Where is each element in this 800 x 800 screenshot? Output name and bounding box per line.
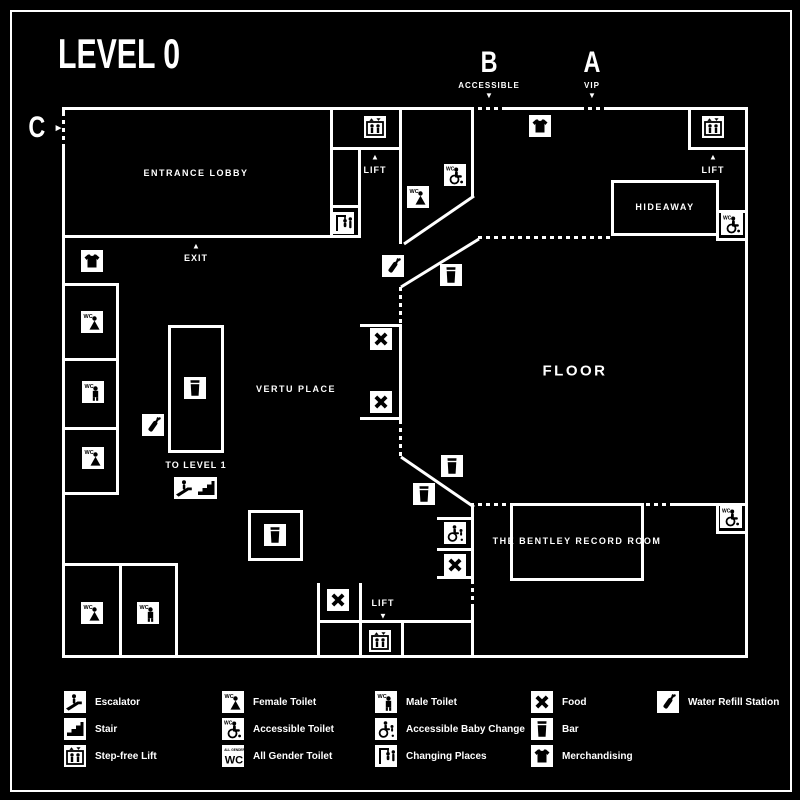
legend-item-label: Female Toilet [253, 697, 316, 708]
legend-item-label: Food [562, 697, 586, 708]
stepfree-lift-icon [64, 745, 86, 767]
food-icon [370, 328, 392, 350]
allgender-toilet-icon: ALL GENDERWC [222, 745, 244, 767]
legend-item-label: All Gender Toilet [253, 751, 332, 762]
svg-text:WC: WC [140, 605, 149, 611]
female-toilet-icon: WC [81, 311, 103, 333]
entrance-a-arrow-icon: ▼ [588, 91, 596, 100]
exit-arrow-icon: ▲ [192, 242, 200, 251]
svg-text:WC: WC [225, 694, 234, 700]
floor-plan-page: LEVEL 0 B ACCESSIBLE ▼ A VIP ▼ C ► ENTRA… [0, 0, 800, 800]
legend-item-label: Water Refill Station [688, 697, 779, 708]
legend-item-accessible-toilet: WCAccessible Toilet [222, 718, 334, 740]
male-toilet-icon: WC [82, 381, 104, 403]
male-toilet-icon: WC [137, 602, 159, 624]
legend-item-male-toilet: WCMale Toilet [375, 691, 457, 713]
floor-label: FLOOR [543, 363, 608, 380]
lift-east-arrow-icon: ▲ [709, 153, 717, 162]
entrance-b: B ACCESSIBLE ▼ [458, 48, 520, 100]
female-toilet-icon: WC [407, 186, 429, 208]
legend-item-merchandising: Merchandising [531, 745, 633, 767]
legend-item-female-toilet: WCFemale Toilet [222, 691, 316, 713]
female-toilet-icon: WC [222, 691, 244, 713]
legend-item-label: Merchandising [562, 751, 633, 762]
accessible-toilet-icon: WC [222, 718, 244, 740]
changing-places-icon [332, 212, 354, 234]
water-refill-icon [382, 255, 404, 277]
legend-item-stair: Stair [64, 718, 117, 740]
accessible-toilet-icon: WC [444, 164, 466, 186]
stair-icon [195, 477, 217, 499]
bar-icon [184, 377, 206, 399]
water-refill-icon [142, 414, 164, 436]
food-icon [444, 554, 466, 576]
lift-south-arrow-icon: ▼ [379, 612, 387, 621]
legend-item-label: Accessible Toilet [253, 724, 334, 735]
entrance-c: C ► [26, 113, 64, 143]
merchandising-icon [529, 115, 551, 137]
svg-text:WC: WC [723, 216, 732, 222]
legend-item-label: Stair [95, 724, 117, 735]
legend-item-allgender-toilet: ALL GENDERWCAll Gender Toilet [222, 745, 332, 767]
merchandising-icon [81, 250, 103, 272]
exit-label: EXIT [184, 253, 208, 263]
food-icon [531, 691, 553, 713]
svg-text:WC: WC [722, 509, 731, 515]
entrance-a-letter: A [584, 48, 601, 78]
accessible-toilet-icon: WC [720, 506, 742, 528]
stepfree-lift-icon [702, 116, 724, 138]
escalator-icon [174, 477, 196, 499]
entrance-lobby-label: ENTRANCE LOBBY [143, 168, 248, 178]
svg-text:WC: WC [410, 189, 419, 195]
entrance-a: A VIP ▼ [581, 48, 603, 100]
entrance-c-arrow-icon: ► [54, 123, 64, 134]
svg-text:WC: WC [84, 605, 93, 611]
svg-text:WC: WC [85, 384, 94, 390]
bar-icon [441, 455, 463, 477]
legend-item-stepfree-lift: Step-free Lift [64, 745, 157, 767]
entrance-c-letter: C [28, 113, 45, 143]
lift-east-label: LIFT [702, 165, 725, 175]
diagonal-walls [0, 0, 800, 800]
entrance-a-sublabel: VIP [584, 81, 600, 90]
legend-item-label: Accessible Baby Change [406, 724, 525, 735]
bar-icon [440, 264, 462, 286]
svg-text:WC: WC [84, 314, 93, 320]
entrance-b-arrow-icon: ▼ [485, 91, 493, 100]
to-level-1-label: TO LEVEL 1 [165, 460, 226, 470]
merchandising-icon [531, 745, 553, 767]
legend-item-label: Male Toilet [406, 697, 457, 708]
stepfree-lift-icon [369, 630, 391, 652]
svg-text:WC: WC [446, 167, 455, 173]
female-toilet-icon: WC [81, 602, 103, 624]
legend-item-label: Bar [562, 724, 579, 735]
legend-item-changing-places: Changing Places [375, 745, 487, 767]
food-icon [327, 589, 349, 611]
water-refill-icon [657, 691, 679, 713]
legend-item-baby-change: Accessible Baby Change [375, 718, 525, 740]
stair-icon [64, 718, 86, 740]
male-toilet-icon: WC [375, 691, 397, 713]
lift-south-label: LIFT [372, 598, 395, 608]
svg-text:WC: WC [85, 450, 94, 456]
svg-text:WC: WC [224, 721, 233, 727]
legend-item-label: Step-free Lift [95, 751, 157, 762]
bar-icon [264, 524, 286, 546]
svg-text:WC: WC [378, 694, 387, 700]
entrance-b-letter: B [481, 48, 498, 78]
legend-item-food: Food [531, 691, 586, 713]
vertu-place-label: VERTU PLACE [256, 384, 336, 394]
female-toilet-icon: WC [82, 447, 104, 469]
food-icon [370, 391, 392, 413]
lift-west-arrow-icon: ▲ [371, 153, 379, 162]
lift-west-label: LIFT [364, 165, 387, 175]
legend-item-escalator: Escalator [64, 691, 140, 713]
svg-text:WC: WC [225, 755, 243, 767]
legend-item-water-refill: Water Refill Station [657, 691, 779, 713]
baby-change-icon [444, 522, 466, 544]
bar-icon [531, 718, 553, 740]
hideaway-label: HIDEAWAY [635, 202, 694, 212]
accessible-toilet-icon: WC [721, 213, 743, 235]
changing-places-icon [375, 745, 397, 767]
svg-text:ALL GENDER: ALL GENDER [224, 748, 244, 752]
legend-item-label: Escalator [95, 697, 140, 708]
bar-icon [413, 483, 435, 505]
stepfree-lift-icon [364, 116, 386, 138]
entrance-b-sublabel: ACCESSIBLE [458, 81, 520, 90]
legend-item-bar: Bar [531, 718, 579, 740]
escalator-icon [64, 691, 86, 713]
bentley-record-room-label: THE BENTLEY RECORD ROOM [493, 536, 662, 546]
baby-change-icon [375, 718, 397, 740]
legend-item-label: Changing Places [406, 751, 487, 762]
